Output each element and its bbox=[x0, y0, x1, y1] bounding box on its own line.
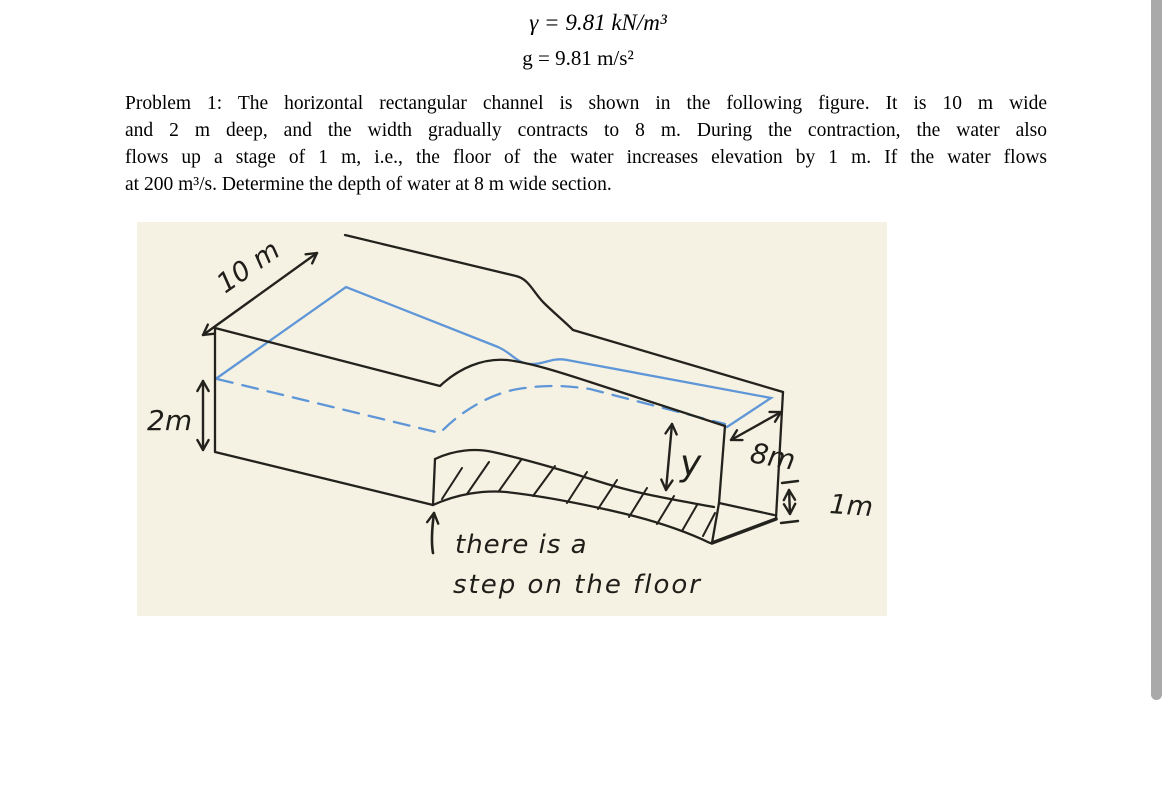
dimension-2m: 2m bbox=[147, 381, 203, 450]
step-note-line2: step on the floor bbox=[453, 570, 702, 600]
right-end-near-edge bbox=[712, 426, 725, 543]
problem-line-2: and 2 m deep, and the width gradually co… bbox=[125, 117, 1047, 144]
label-2m: 2m bbox=[147, 404, 192, 437]
document-page: { "equations": { "line1": "γ = 9.81 kN/m… bbox=[0, 0, 1170, 795]
label-1m: 1m bbox=[829, 489, 875, 523]
channel-left-face-edges bbox=[215, 328, 433, 505]
hatch-strokes bbox=[442, 460, 715, 536]
step-annotation: there is a step on the floor bbox=[432, 513, 702, 600]
problem-line-4: at 200 m³/s. Determine the depth of wate… bbox=[125, 171, 1047, 198]
label-y: y bbox=[679, 443, 702, 484]
channel-outline bbox=[215, 235, 783, 543]
step-hatching bbox=[442, 460, 715, 536]
water-surface-solid-edge bbox=[217, 287, 771, 427]
problem-line-1: Problem 1: The horizontal rectangular ch… bbox=[125, 90, 1047, 117]
equation-g: g = 9.81 m/s² bbox=[522, 46, 633, 71]
equation-gamma: γ = 9.81 kN/m³ bbox=[529, 10, 667, 36]
problem-figure: 10 m 2m y 8m 1m there is a step on the f… bbox=[137, 222, 887, 616]
step-note-line1: there is a bbox=[455, 530, 588, 560]
dimension-8m: 8m bbox=[731, 412, 798, 477]
label-10m: 10 m bbox=[211, 235, 286, 300]
right-end-mid-edge bbox=[719, 503, 774, 515]
step-front-vertical-edge bbox=[433, 459, 435, 505]
label-8m: 8m bbox=[748, 436, 798, 476]
arrow-y bbox=[666, 424, 672, 490]
dimension-y: y bbox=[666, 424, 702, 490]
problem-statement: Problem 1: The horizontal rectangular ch… bbox=[125, 90, 1047, 198]
scrollbar-thumb[interactable] bbox=[1151, 0, 1162, 700]
step-note-arrow bbox=[432, 513, 434, 553]
right-end-bottom-edge bbox=[712, 519, 776, 543]
dimension-1m: 1m bbox=[781, 481, 874, 523]
problem-line-3: flows up a stage of 1 m, i.e., the floor… bbox=[125, 144, 1047, 171]
water-surface-hidden-edge bbox=[217, 379, 725, 433]
arrow-8m bbox=[731, 412, 781, 440]
channel-sketch-svg: 10 m 2m y 8m 1m there is a step on the f… bbox=[137, 222, 887, 616]
channel-near-top-edge bbox=[215, 328, 725, 426]
arrow-1m bbox=[789, 490, 790, 514]
